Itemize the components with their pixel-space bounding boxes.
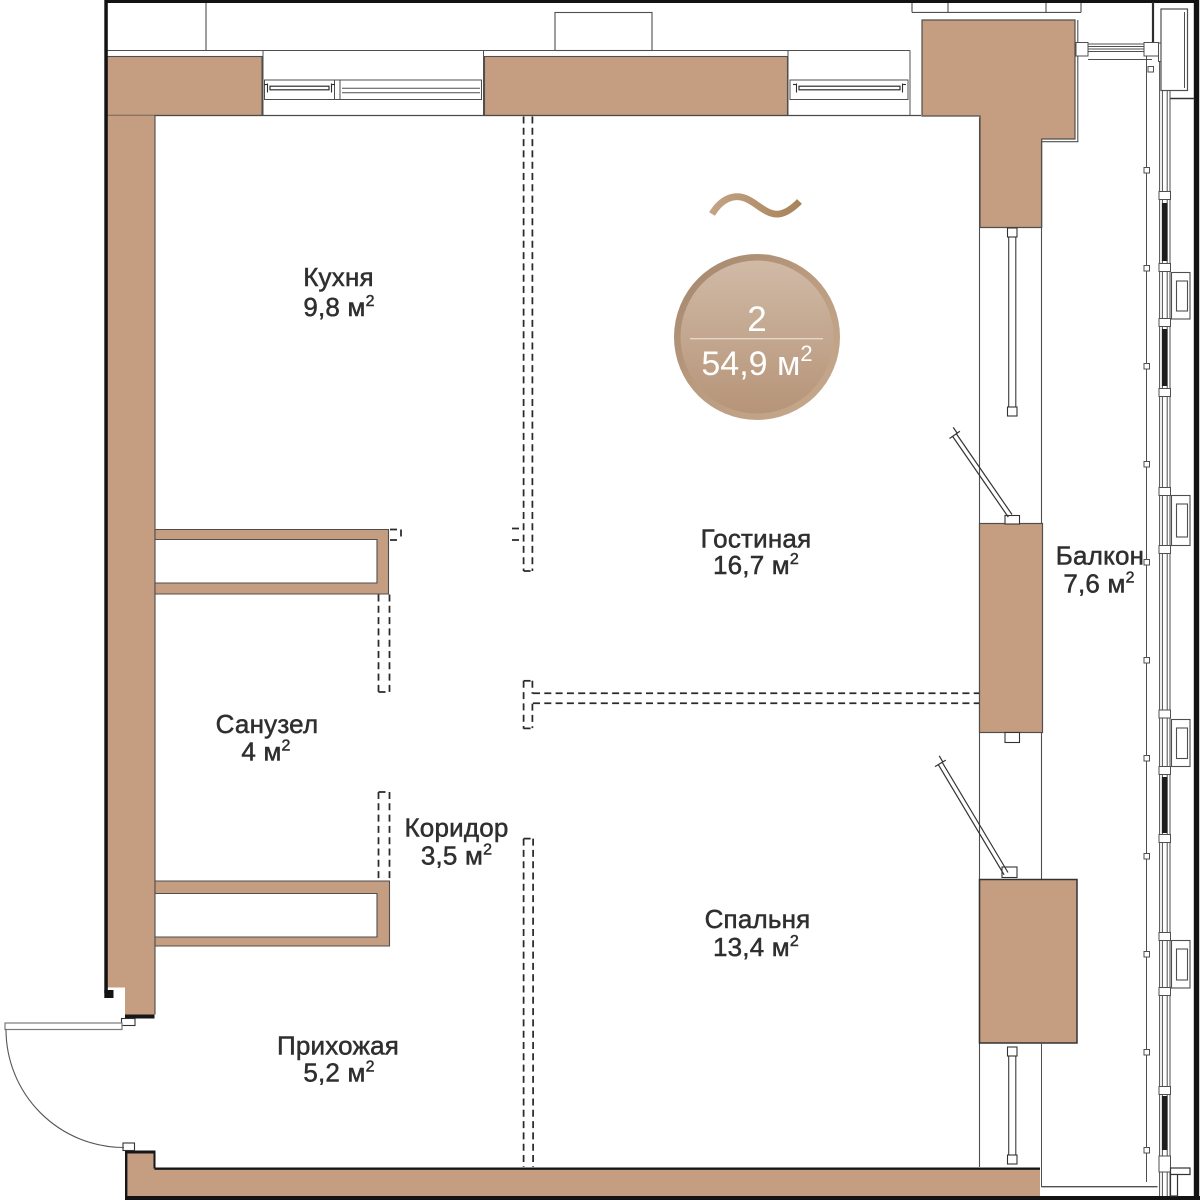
svg-text:13,4 м2: 13,4 м2 [713, 932, 799, 962]
svg-text:16,7 м2: 16,7 м2 [713, 550, 799, 580]
svg-text:Балкон: Балкон [1056, 541, 1144, 571]
svg-text:Прихожая: Прихожая [277, 1031, 399, 1061]
svg-text:Коридор: Коридор [404, 813, 508, 843]
svg-text:5,2 м2: 5,2 м2 [303, 1058, 374, 1088]
svg-text:Гостиная: Гостиная [701, 524, 812, 554]
svg-text:Санузел: Санузел [216, 709, 319, 739]
svg-text:2: 2 [747, 300, 766, 339]
svg-text:9,8 м2: 9,8 м2 [303, 292, 374, 322]
svg-text:Спальня: Спальня [705, 904, 811, 934]
svg-text:Кухня: Кухня [303, 262, 374, 292]
svg-text:3,5 м2: 3,5 м2 [421, 841, 492, 871]
svg-text:7,6 м2: 7,6 м2 [1063, 569, 1134, 599]
svg-text:54,9 м2: 54,9 м2 [701, 341, 812, 383]
